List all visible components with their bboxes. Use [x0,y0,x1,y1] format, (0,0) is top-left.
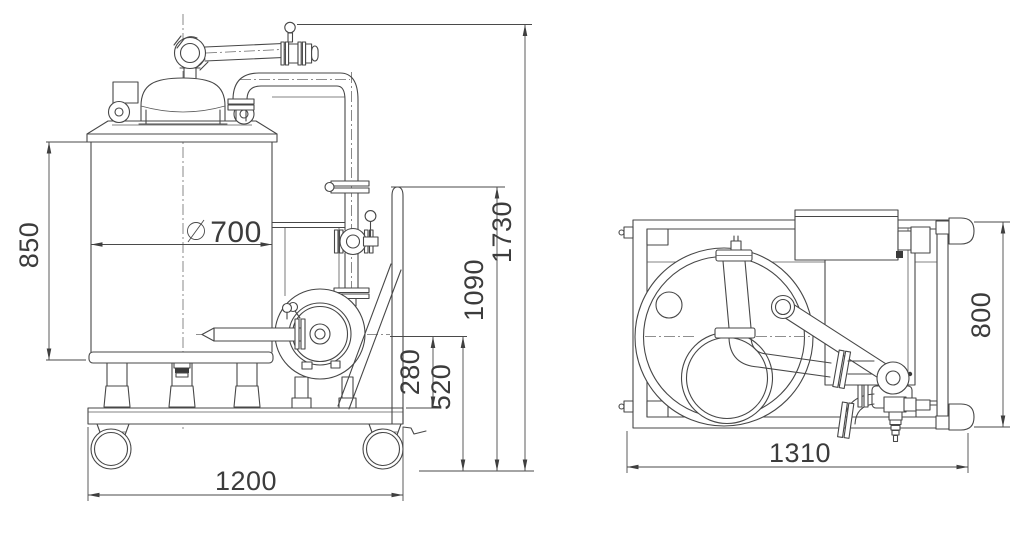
dimension-280-label: 280 [395,349,425,396]
dimension-1200-label: 1200 [215,466,277,496]
riser-pipe [228,73,369,306]
technical-drawing-page: 850 700 280 520 1090 [0,0,1024,537]
diameter-symbol [188,220,205,242]
top-view: 800 1310 [619,210,1010,473]
brake-lever [403,427,426,434]
dimension-520-label: 520 [426,364,456,411]
motor-coupling [898,231,911,250]
lid-bracket [113,82,138,103]
left-caster-stub [624,401,633,412]
dimension-1730-label: 1730 [487,201,517,263]
lid-circle [682,333,773,424]
arm-end-valve [281,22,318,65]
handle-knob [877,362,909,394]
caster-right [363,424,426,469]
tri-clamp-fitting-mid [325,181,369,193]
outlet-tee [884,397,906,412]
tri-clamp-fitting [228,99,254,104]
motor-coupling [911,227,930,253]
pump [202,289,365,379]
swing-arm-outlet-valve [174,22,318,78]
trolley-base-plate [88,408,403,424]
left-caster-stub [624,227,633,238]
pump-legs [292,377,356,408]
dimension-1310-label: 1310 [769,438,831,468]
dimension-700-label: 700 [210,216,262,249]
port-circle [656,292,682,318]
drawing-canvas: 850 700 280 520 1090 [0,0,1024,537]
corner-gusset [647,229,668,245]
valve-lever-ball [365,211,376,222]
motor-bracket [272,97,345,296]
hose-barb [889,412,902,442]
side-view-dimensions: 850 700 280 520 1090 [14,25,534,502]
valve-handle-ball [285,22,295,32]
drain-fitting [174,363,190,377]
caster-left [91,424,131,469]
lifting-lug-left [109,102,130,123]
valve-stem [288,33,293,42]
dimension-1090-label: 1090 [459,259,489,321]
dimension-850-label: 850 [14,222,44,269]
butterfly-valve [335,211,379,255]
side-view: 850 700 280 520 1090 [14,14,534,501]
dimension-800-label: 800 [966,292,996,339]
valve-bracket [364,237,379,246]
